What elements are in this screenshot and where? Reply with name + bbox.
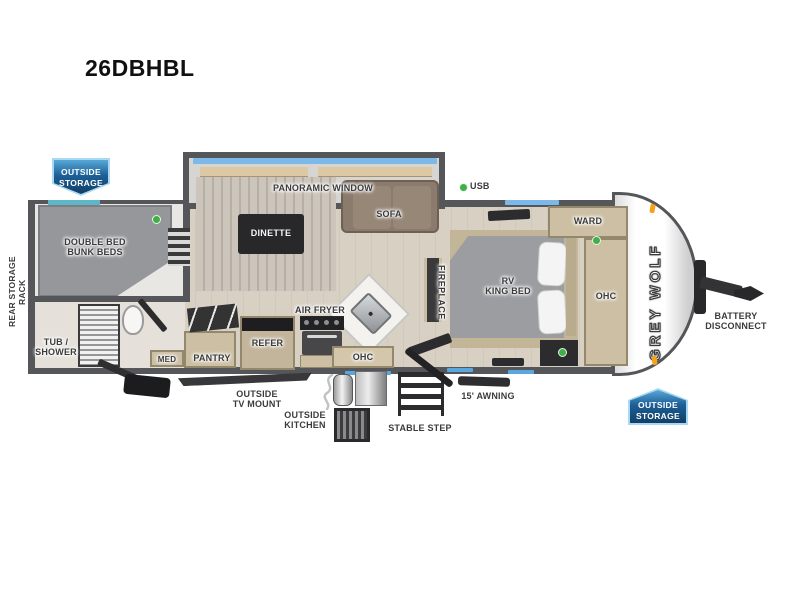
bedroom-usb-dot-bottom xyxy=(558,348,567,357)
window-valance-right xyxy=(318,167,432,177)
awning-rail-2 xyxy=(447,368,473,372)
usb-label: USB xyxy=(470,181,500,191)
fireplace-label: FIREPLACE xyxy=(436,256,446,328)
bedroom-ohc-label: OHC xyxy=(584,291,628,301)
ward-label: WARD xyxy=(548,216,628,226)
awning-label: 15' AWNING xyxy=(448,391,528,401)
tv-mount-bracket xyxy=(178,373,312,387)
refer-label: REFER xyxy=(240,338,295,348)
awning-arm xyxy=(458,376,510,387)
outside-kitchen-grill xyxy=(334,408,370,442)
outside-tv-mount-label: OUTSIDE TV MOUNT xyxy=(212,389,302,410)
med-label: MED xyxy=(149,355,185,364)
usb-indicator-dot xyxy=(459,183,468,192)
dinette-label: DINETTE xyxy=(238,228,304,238)
brand-logo: GREY WOLF xyxy=(647,213,664,361)
pantry-label: PANTRY xyxy=(184,353,240,363)
model-number: 26DBHBL xyxy=(85,55,195,82)
sofa-label: SOFA xyxy=(366,209,412,219)
toilet xyxy=(122,305,144,335)
bunk-usb-dot xyxy=(152,215,161,224)
battery-disconnect-label: BATTERY DISCONNECT xyxy=(696,311,776,332)
rear-step xyxy=(123,374,171,399)
kitchen-ohc-label: OHC xyxy=(332,352,394,362)
outside-kitchen-fridge xyxy=(355,371,387,406)
front-outside-storage-badge: OUTSIDE STORAGE xyxy=(628,388,688,425)
cooktop xyxy=(300,316,344,330)
outside-kitchen-label: OUTSIDE KITCHEN xyxy=(276,410,334,431)
rear-outside-storage-text: OUTSIDE STORAGE xyxy=(59,166,103,187)
floorplan-diagram: 26DBHBL GREY WOLF DINETTE SOFA PANORAMIC… xyxy=(0,0,800,600)
bedroom-usb-dot-top xyxy=(592,236,601,245)
rear-storage-door xyxy=(48,200,100,205)
outside-kitchen-cooler xyxy=(333,374,353,406)
panoramic-window-label: PANORAMIC WINDOW xyxy=(262,183,384,193)
tub-shower-label: TUB / SHOWER xyxy=(30,337,82,358)
bunk-beds-label: DOUBLE BED BUNK BEDS xyxy=(55,237,135,258)
bedroom-window xyxy=(505,200,559,205)
window-valance-left xyxy=(200,167,308,177)
air-fryer-label: AIR FRYER xyxy=(292,305,348,315)
front-outside-storage-text: OUTSIDE STORAGE xyxy=(636,392,680,420)
awning-rail-3 xyxy=(508,370,534,374)
bath-wall xyxy=(35,296,187,302)
headboard xyxy=(566,238,576,336)
rear-storage-rack-label: REAR STORAGE RACK xyxy=(8,244,28,340)
shower-door xyxy=(78,304,120,367)
bedroom-ohc xyxy=(584,238,628,366)
bedroom-bench xyxy=(492,358,524,366)
king-bed-label: RV KING BED xyxy=(468,276,548,297)
stable-step-label: STABLE STEP xyxy=(378,423,462,433)
bunk-ladder xyxy=(168,228,190,266)
panoramic-window-glass xyxy=(193,158,437,164)
rear-outside-storage-badge: OUTSIDE STORAGE xyxy=(52,158,110,196)
